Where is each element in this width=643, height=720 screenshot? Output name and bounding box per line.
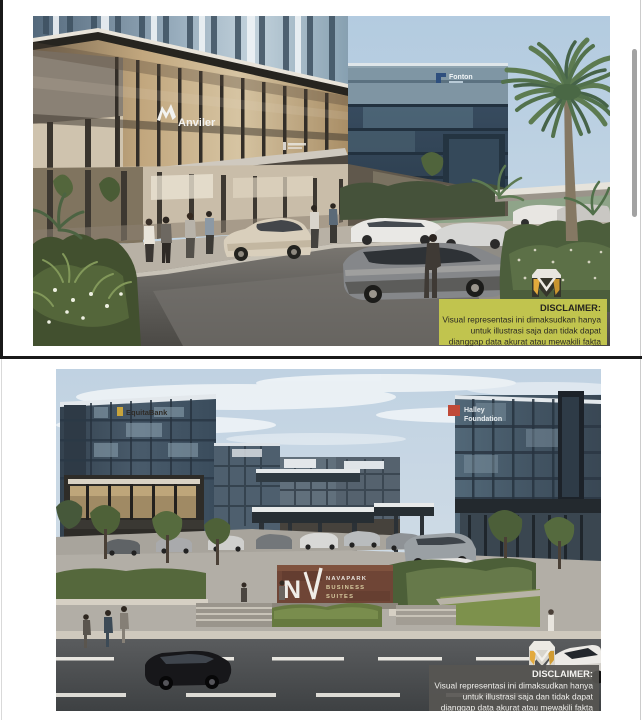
svg-text:Foundation: Foundation bbox=[464, 416, 502, 423]
svg-text:Anviler: Anviler bbox=[178, 117, 216, 129]
svg-text:NAVAPARK: NAVAPARK bbox=[326, 576, 367, 582]
svg-text:DISCLAIMER:: DISCLAIMER: bbox=[532, 669, 593, 679]
svg-text:dianggap data akurat atau mewa: dianggap data akurat atau mewakili fakta bbox=[441, 703, 594, 712]
svg-text:EquitaBank: EquitaBank bbox=[126, 408, 168, 417]
svg-text:N: N bbox=[283, 576, 301, 604]
svg-text:BUSINESS: BUSINESS bbox=[326, 585, 365, 591]
svg-text:untuk illustrasi saja dan tida: untuk illustrasi saja dan tidak dapat bbox=[463, 692, 594, 702]
svg-text:Visual representasi ini dimaks: Visual representasi ini dimaksudkan hany… bbox=[434, 681, 593, 691]
svg-text:SUITES: SUITES bbox=[326, 594, 354, 600]
svg-text:Fonton: Fonton bbox=[449, 74, 473, 81]
svg-text:Visual representasi ini dimaks: Visual representasi ini dimaksudkan hany… bbox=[442, 315, 601, 325]
svg-text:dianggap data akurat atau mewa: dianggap data akurat atau mewakili fakta bbox=[449, 337, 602, 347]
svg-text:Halley: Halley bbox=[464, 407, 485, 414]
svg-text:untuk illustrasi saja dan tida: untuk illustrasi saja dan tidak dapat bbox=[471, 326, 602, 336]
svg-text:DISCLAIMER:: DISCLAIMER: bbox=[540, 303, 601, 313]
